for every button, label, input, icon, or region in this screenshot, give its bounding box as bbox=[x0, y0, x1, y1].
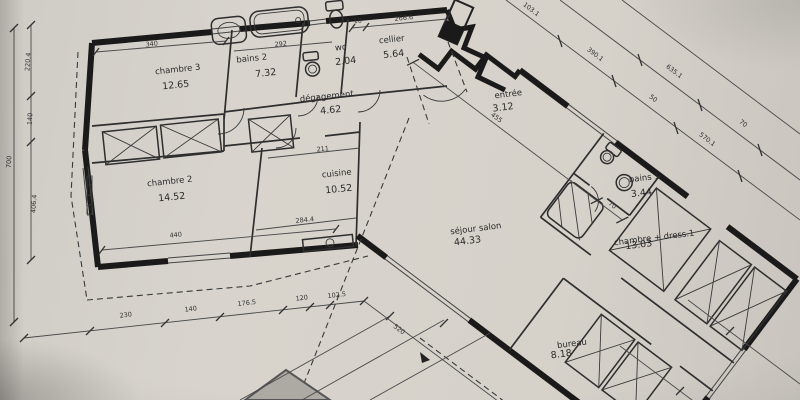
room-area-cuisine: 10.52 bbox=[325, 183, 353, 197]
right-wing: 455 70 entrée 3.12 séjour salon 44.33 ba… bbox=[301, 12, 800, 400]
room-area-sejour: 44.33 bbox=[453, 234, 481, 248]
dim-bottom-c: 176.5 bbox=[237, 298, 256, 308]
bureau-cabinet-2 bbox=[602, 342, 672, 400]
room-label-wc: wc bbox=[334, 42, 347, 53]
room-label-degagement: dégagement bbox=[299, 88, 355, 105]
dim-top-b: 292 bbox=[274, 39, 287, 48]
dimension-lines bbox=[10, 0, 800, 400]
room-label-chambre3: chambre 3 bbox=[155, 63, 201, 78]
dim-mid-a: 440 bbox=[169, 230, 182, 239]
dim-tr-c: 50 bbox=[647, 93, 658, 104]
dim-tr-e: 635.1 bbox=[664, 63, 684, 81]
dim-left-b: 140 bbox=[26, 112, 35, 125]
floor-plan-photo: 455 70 entrée 3.12 séjour salon 44.33 ba… bbox=[0, 0, 800, 400]
room-area-cellier: 5.64 bbox=[383, 48, 405, 61]
room-label-cellier: cellier bbox=[378, 34, 405, 47]
dim-left-a: 220.4 bbox=[23, 52, 32, 71]
room-label-bains2: bains 2 bbox=[236, 52, 268, 65]
right-wing-walls bbox=[304, 14, 800, 400]
dim-bottom-b: 140 bbox=[184, 304, 197, 313]
dim-left-c: 406.4 bbox=[29, 194, 38, 213]
room-area-bureau: 8.18 bbox=[550, 348, 572, 361]
wc-toilet bbox=[303, 51, 320, 76]
room-area-chambre1: 13.03 bbox=[625, 238, 653, 252]
toilet-tank-icon bbox=[325, 0, 343, 11]
entree-stepped-wall bbox=[447, 10, 505, 90]
bureau-cabinet-1 bbox=[565, 314, 635, 387]
closet-2 bbox=[160, 119, 221, 158]
toilet-icon bbox=[598, 148, 616, 166]
room-area-wc: 2.04 bbox=[335, 55, 357, 68]
dim-tr-a: 103.1 bbox=[521, 1, 541, 19]
dim-bottom-d: 120 bbox=[295, 293, 308, 302]
room-label-chambre2: chambre 2 bbox=[147, 175, 193, 190]
room-area-entree: 3.12 bbox=[492, 101, 514, 114]
dim-tr-f: 70 bbox=[737, 118, 748, 129]
dim-tr-b: 390.1 bbox=[585, 46, 605, 64]
dim-mid-b: 211 bbox=[316, 144, 329, 153]
room-label-bains1: bains 1 bbox=[628, 172, 660, 186]
floor-plan-drawing: 455 70 entrée 3.12 séjour salon 44.33 ba… bbox=[0, 0, 800, 400]
room-area-chambre2: 14.52 bbox=[158, 191, 186, 205]
closet-3 bbox=[248, 115, 293, 152]
sejour-dim-line: 455 70 bbox=[407, 53, 631, 227]
room-area-bains2: 7.32 bbox=[255, 67, 277, 80]
dim-bottom-f: 520 bbox=[392, 322, 407, 336]
dim-top-c: 10 bbox=[353, 17, 362, 26]
dim-top-a: 340 bbox=[145, 39, 158, 48]
dim-bottom-a: 230 bbox=[119, 310, 132, 319]
dim-top-d: 266.6 bbox=[394, 13, 413, 23]
dim-arrow bbox=[420, 352, 430, 363]
terrace-step bbox=[245, 370, 330, 400]
room-area-chambre3: 12.65 bbox=[162, 79, 190, 93]
room-label-cuisine: cuisine bbox=[321, 167, 352, 180]
dim-bottom-e: 102.5 bbox=[327, 290, 346, 300]
room-area-degagement: 4.62 bbox=[320, 104, 342, 117]
dim-left-outer: 700 bbox=[5, 155, 14, 168]
wardrobe-1 bbox=[675, 241, 751, 324]
